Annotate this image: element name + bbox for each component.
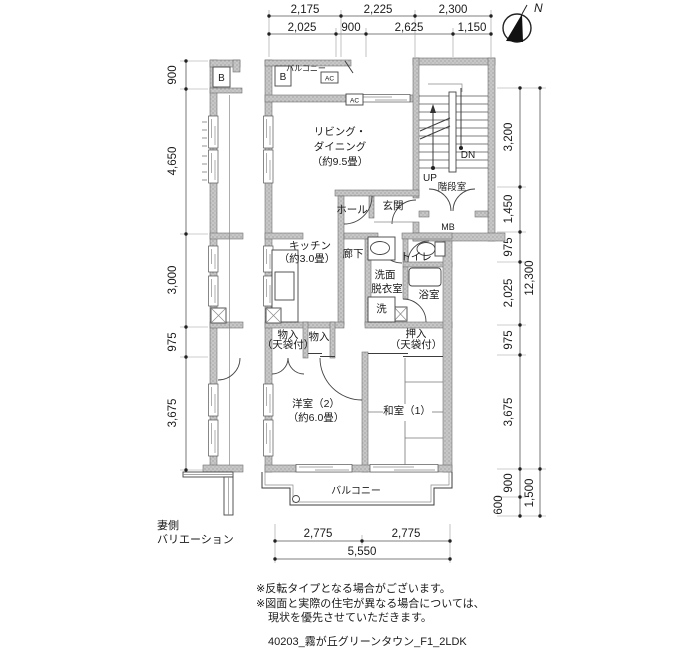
dimensions-bottom: 2,775 2,775 5,550 (273, 524, 451, 563)
dim-top1-3: 2,300 (439, 4, 468, 16)
floor-plan-drawing: 2,175 2,225 2,300 2,025 900 2,625 1,150 … (0, 0, 700, 650)
living-label-2: ダイニング (314, 140, 367, 153)
dimensions-right: 3,200 1,450 975 2,025 975 3,675 900 600 … (493, 86, 546, 517)
oshiire-label-2: （天袋付） (390, 338, 443, 351)
north-label: N (534, 1, 543, 15)
bath-label: 浴室 (419, 288, 440, 301)
dim-right-1: 3,200 (503, 123, 515, 152)
balcony-bottom-label: バルコニー (331, 485, 381, 497)
dim-bottom-2: 2,775 (392, 528, 421, 540)
balcony-drain-icon (293, 496, 300, 503)
ac-label-2: AC (350, 98, 359, 105)
dim-top2-3: 2,625 (395, 22, 424, 34)
kitchen-label-2: （約3.0畳） (279, 252, 336, 265)
dim-bottom-1: 2,775 (304, 528, 333, 540)
notes: ※反転タイプとなる場合がございます。 ※図面と実際の住宅が異なる場合については、… (256, 581, 485, 648)
dim-left-5: 3,675 (167, 399, 179, 428)
washroom-label-2: 脱衣室 (371, 282, 403, 295)
western-room-label-1: 洋室（2） (292, 397, 340, 410)
dim-top2-1: 2,025 (288, 22, 317, 34)
dim-left-3: 3,000 (167, 266, 179, 295)
dim-top1-2: 2,225 (364, 4, 393, 16)
kitchen-label-1: キッチン (289, 240, 331, 252)
north-compass: N (503, 1, 543, 42)
western-room-door-arc (320, 358, 362, 400)
strip-vent-box (211, 308, 226, 323)
dim-left-2: 4,650 (167, 147, 179, 176)
toilet-label: トイレ (400, 251, 432, 263)
storage1-label-2: （天袋付） (262, 338, 315, 351)
gable-label-line2: バリエーション (157, 533, 234, 546)
dimension-dots-right (518, 86, 541, 517)
b-mark: B (280, 72, 287, 83)
mb-label: MB (441, 222, 455, 232)
corridor-vent-box (394, 307, 407, 321)
gable-label-line1: 妻側 (157, 519, 179, 532)
storage2-label: 物入 (309, 330, 330, 343)
dim-top2-2: 900 (341, 22, 360, 34)
note-3: 現状を優先させていただきます。 (268, 610, 432, 624)
stairwell: UP DN 階段室 MB (419, 84, 488, 232)
dim-right-4: 2,025 (503, 279, 515, 308)
dim-top2-4: 1,150 (458, 22, 487, 34)
gable-variation-strip: B (183, 60, 243, 515)
up-label: UP (423, 173, 437, 184)
b-mark-strip: B (218, 73, 225, 84)
strip-balcony-corner (183, 472, 233, 515)
plan-id: 40203_霧が丘グリーンタウン_F1_2LDK (268, 634, 467, 648)
dim-right-balcony: 1,500 (524, 479, 536, 508)
dim-right-5: 975 (503, 330, 515, 349)
ac-label-1: AC (325, 76, 334, 83)
balcony-bottom: バルコニー (262, 472, 452, 505)
dimensions-left: 900 4,650 3,000 975 3,675 (167, 59, 208, 471)
oshiire-sliding-doors (368, 354, 443, 357)
entrance-label: 玄関 (383, 199, 404, 212)
stair-stringer (449, 92, 456, 172)
kitchen-vent-box (266, 308, 281, 323)
wash-basin (368, 237, 395, 260)
dim-bottom-total: 5,550 (348, 546, 377, 558)
dim-top1-1: 2,175 (291, 4, 320, 16)
closet-door-arc-left (272, 358, 288, 374)
note-1: ※反転タイプとなる場合がございます。 (256, 581, 451, 595)
strip-door-arc (218, 358, 240, 380)
western-room-label-2: （約6.0畳） (288, 411, 345, 424)
dim-right-total: 12,300 (524, 260, 536, 295)
note-2: ※図面と実際の住宅が異なる場合については、 (256, 596, 485, 610)
strip-windows (209, 116, 219, 456)
stair-void-rail (428, 84, 462, 92)
gable-label: 妻側 バリエーション (157, 519, 234, 546)
corridor-label: 廊下 (343, 247, 364, 260)
bathtub (409, 268, 441, 286)
living-label-1: リビング・ (314, 125, 367, 138)
dimensions-top: 2,175 2,225 2,300 2,025 900 2,625 1,150 (267, 4, 492, 57)
balcony-top-label: バルコニー (286, 64, 326, 73)
dim-left-1: 900 (167, 65, 179, 84)
stair-room-label: 階段室 (438, 181, 467, 193)
washroom-label-1: 洗面 (375, 269, 396, 281)
laundry-label: 洗 (376, 303, 387, 315)
dim-left-4: 975 (167, 332, 179, 351)
hall-label: ホール (336, 204, 368, 216)
strip-hatch-marks (202, 122, 207, 180)
floor-plan-page: 2,175 2,225 2,300 2,025 900 2,625 1,150 … (0, 0, 700, 650)
closet-door-arc-right (288, 358, 304, 374)
japanese-room-label: 和室（1） (383, 404, 431, 417)
dim-right-2: 1,450 (503, 195, 515, 224)
dn-arrow (459, 88, 463, 150)
dim-right-6: 3,675 (503, 398, 515, 427)
dim-right-8: 600 (493, 495, 505, 514)
living-label-3: （約9.5畳） (312, 155, 369, 168)
dim-right-7: 900 (503, 473, 515, 492)
dn-label: DN (461, 150, 475, 161)
